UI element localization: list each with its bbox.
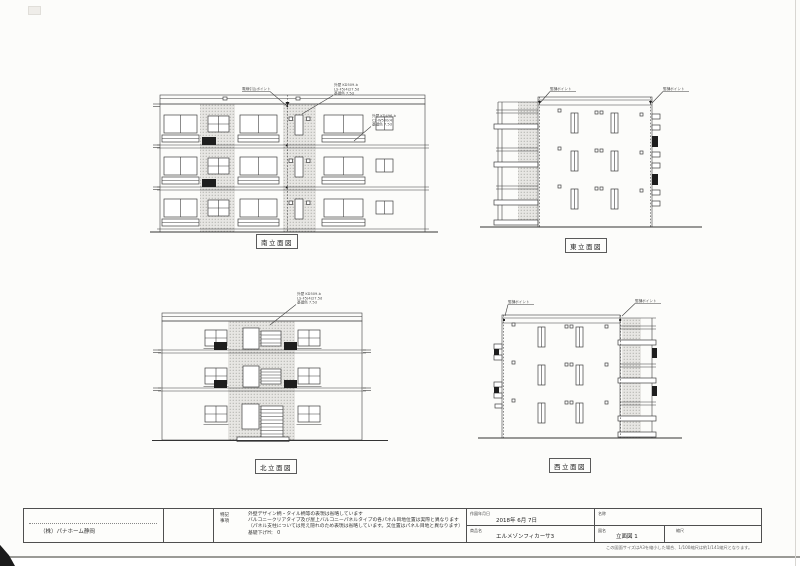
name-label: 名称 [598, 511, 606, 517]
south-elevation-label: 南立面図 [256, 234, 298, 249]
east-label-text: 東立面図 [570, 243, 602, 251]
scan-right-edge [795, 0, 796, 566]
north-window [204, 406, 229, 425]
titleblock-divider [163, 509, 164, 542]
south-spec1-line1: 外壁 KD509-b [334, 82, 359, 87]
south-wire-label: 電線引込ポイント [242, 86, 271, 91]
east-elevation-drawing: 竪樋ポイント 竪樋ポイント 東立面図 [472, 80, 710, 256]
west-window-row-3 [512, 323, 608, 347]
west-downspout-label-right: 竪樋ポイント [635, 298, 657, 303]
east-downspout-label-right: 竪樋ポイント [663, 86, 685, 91]
south-elevation-svg: 電線引込ポイント 外壁 KD509-b LS-F5(4)27.5d 基礎色 7.… [148, 80, 440, 236]
north-dark-panel [214, 342, 227, 350]
titleblock-divider [213, 509, 214, 542]
north-dark-panel [284, 342, 297, 350]
titleblock-row-divider [466, 525, 761, 526]
west-annotation-left: 竪樋ポイント [505, 299, 534, 316]
east-elevation-label: 東立面図 [565, 238, 607, 253]
east-right-edge-fixtures [652, 114, 660, 206]
north-spec-line1: 外壁 KD509-b [297, 291, 322, 296]
west-annotation-right: 竪樋ポイント [622, 298, 661, 316]
south-label-text: 南立面図 [261, 239, 293, 247]
scale-label: 縮尺 [676, 528, 684, 534]
notes-label: 特記事項 [220, 513, 232, 524]
north-elevation-svg: 外壁 KD509-b LS-F5(4)27.5d 基礎色 7.5d [148, 288, 440, 460]
note-line: 基礎下げH： 0 [248, 531, 463, 537]
special-notes: 外壁デザイン柄・タイル柄等の表現は省略しています バルコニークリアタイプ及び屋上… [248, 512, 463, 538]
sheet-label: 図名 [598, 528, 606, 534]
north-elevation-drawing: 外壁 KD509-b LS-F5(4)27.5d 基礎色 7.5d 北立面図 [148, 288, 440, 478]
west-dark-panel [652, 348, 657, 358]
east-window-row-3 [558, 109, 643, 133]
north-dark-panel [284, 380, 297, 388]
west-building-outline [502, 315, 620, 438]
north-annotation-spec: 外壁 KD509-b LS-F5(4)27.5d 基礎色 7.5d [270, 291, 322, 325]
south-spec2-line1: 外壁 KD496-b [372, 113, 397, 118]
east-elevation-svg: 竪樋ポイント 竪樋ポイント [472, 80, 710, 232]
south-dark-panel-1 [202, 137, 216, 145]
titleblock-divider [664, 525, 665, 542]
east-building-outline [538, 97, 652, 227]
west-left-edge-fixtures [494, 344, 502, 408]
west-elevation-label: 西立面図 [549, 458, 591, 473]
company-cell-dotted-line [29, 523, 157, 524]
west-elevation-drawing: 竪樋ポイント 竪樋ポイント 西立面図 [470, 292, 712, 476]
west-expansion-joints [503, 315, 621, 438]
east-window-row-1 [558, 185, 643, 209]
north-label-text: 北立面図 [260, 464, 292, 472]
south-annotation-spec1: 外壁 KD509-b LS-F5(4)27.5d 基礎色 7.5d [302, 82, 359, 114]
north-spec-line3: 基礎色 7.5d [297, 300, 317, 305]
north-elevation-label: 北立面図 [255, 459, 297, 474]
north-window [297, 406, 322, 425]
north-window [297, 330, 322, 349]
south-spec1-line3: 基礎色 7.5d [334, 91, 354, 96]
west-label-text: 西立面図 [554, 463, 586, 471]
date-label: 作図年月日 [470, 511, 490, 517]
note-line: （パネル支柱については見え隠れのため表現は省略しています。又位置はパネル目地と異… [248, 524, 463, 530]
product-label: 商品名 [470, 528, 482, 534]
south-spec2-line3: 基礎色 7.5d [372, 122, 392, 127]
south-side-ticks [153, 104, 160, 190]
west-dark-panel [652, 386, 657, 396]
date-value: 2018年 6月 7日 [496, 516, 537, 524]
scan-corner-shadow [0, 542, 15, 566]
west-window-row-1 [512, 399, 608, 423]
title-block: （株）パナホーム静岡 特記事項 外壁デザイン柄・タイル柄等の表現は省略しています… [23, 508, 762, 543]
sheet-value: 立面図 1 [616, 532, 638, 540]
east-annotation-left: 竪樋ポイント [540, 86, 576, 103]
scan-bottom-strip [0, 558, 800, 566]
south-elevation-drawing: 電線引込ポイント 外壁 KD509-b LS-F5(4)27.5d 基礎色 7.… [148, 80, 440, 252]
product-value: エルメゾンフィカーサ3 [496, 532, 554, 540]
west-elevation-svg: 竪樋ポイント 竪樋ポイント [470, 292, 712, 454]
north-dark-panel [214, 380, 227, 388]
company-name: （株）パナホーム静岡 [40, 527, 95, 535]
east-window-row-2 [558, 147, 643, 171]
west-downspout-label-left: 竪樋ポイント [508, 299, 530, 304]
east-downspout-label-left: 竪樋ポイント [550, 86, 572, 91]
south-dark-panel-2 [202, 179, 216, 187]
scale-footnote: この図面サイズはA3を縮小した場合、1/100縮尺は約1/141縮尺となります。 [606, 545, 752, 551]
scan-artifact-mark [28, 6, 41, 15]
west-window-row-2 [512, 361, 608, 385]
north-window [297, 368, 322, 387]
east-expansion-joints [538, 97, 652, 227]
east-annotation-right: 竪樋ポイント [652, 86, 689, 103]
